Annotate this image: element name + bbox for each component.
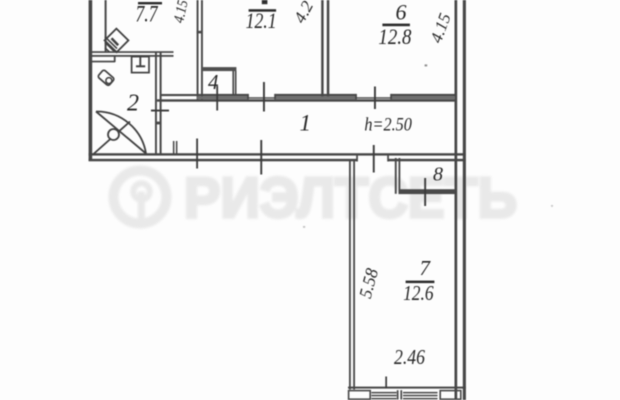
svg-text:4.15: 4.15 [171,0,192,25]
svg-text:1: 1 [300,110,312,135]
svg-text:5.58: 5.58 [355,266,382,300]
svg-text:h=2.50: h=2.50 [364,114,412,135]
svg-text:7: 7 [420,256,432,280]
svg-text:8: 8 [433,164,443,186]
svg-text:6: 6 [396,0,407,25]
svg-text:4.15: 4.15 [427,11,455,46]
svg-text:12.6: 12.6 [403,281,434,305]
svg-text:12.1: 12.1 [246,8,277,33]
svg-text:4.2: 4.2 [290,0,317,26]
svg-text:2.46: 2.46 [394,345,425,369]
svg-text:2: 2 [127,90,139,116]
svg-text:4: 4 [208,70,219,94]
svg-text:7.7: 7.7 [136,2,159,27]
svg-text:12.8: 12.8 [378,24,411,49]
